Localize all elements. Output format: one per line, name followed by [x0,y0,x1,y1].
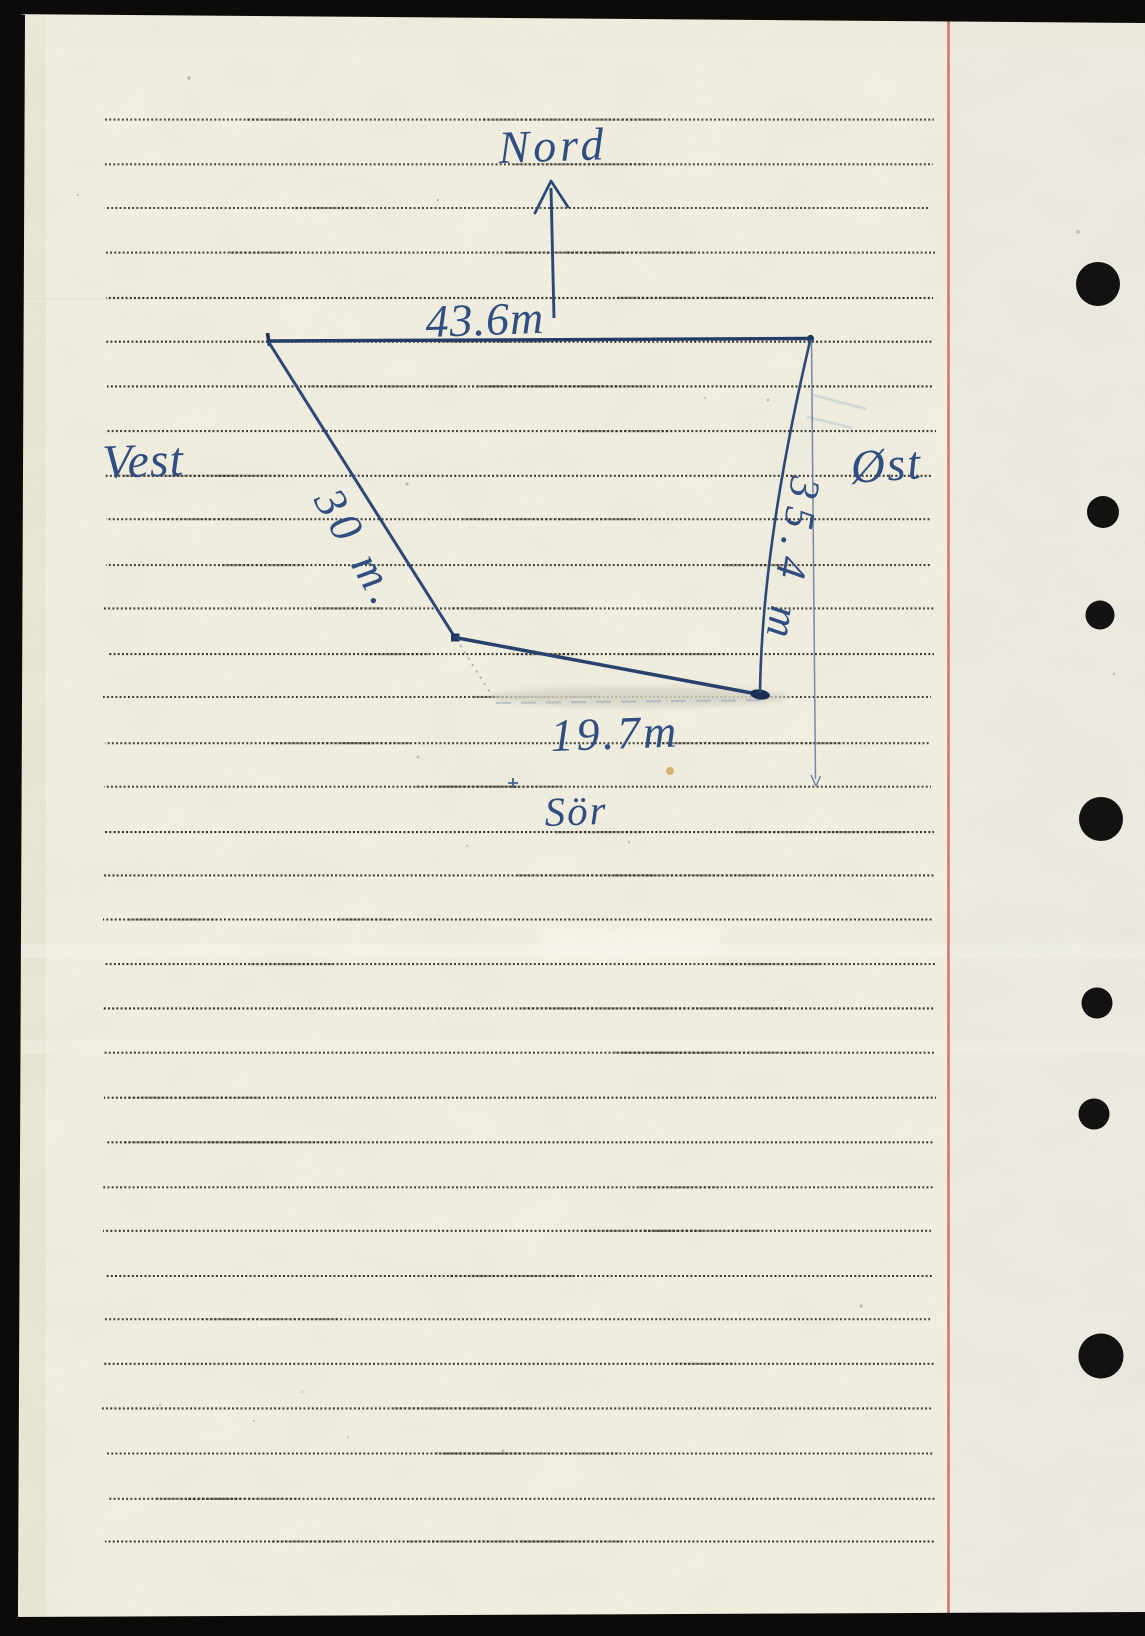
svg-text:19.7m: 19.7m [550,706,680,761]
svg-text:Nord: Nord [497,118,609,173]
svg-text:43.6m: 43.6m [425,292,545,347]
svg-text:Vest: Vest [102,433,186,489]
svg-text:Sör: Sör [544,787,609,835]
svg-text:Øst: Øst [848,437,924,494]
